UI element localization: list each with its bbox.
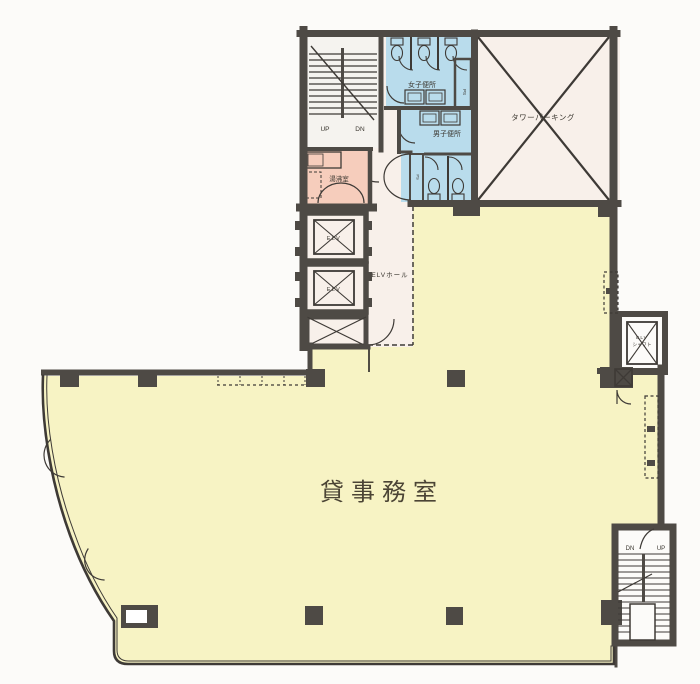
elevator-jamb: [366, 247, 372, 256]
column-with-shaft: [121, 605, 158, 628]
elevator-jamb: [366, 272, 372, 281]
stair-se-up-label: UP: [657, 546, 665, 552]
column: [305, 606, 323, 625]
column: [446, 607, 463, 625]
floor-plan-page: タワーパーキング UP DN 女子便所: [0, 0, 700, 684]
elevator-shaft-east: ELV シャフト: [619, 314, 665, 372]
tower-parking: タワーパーキング: [478, 37, 610, 201]
column: [60, 373, 79, 387]
stair-se-break-line: [618, 574, 652, 592]
elevator-2-label: ELV: [327, 287, 342, 293]
office-label: 貸事務室: [320, 479, 444, 506]
womens-toilet-label: 女子便所: [408, 80, 436, 89]
kitchenette: 湯沸室: [302, 148, 372, 207]
womens-toilet: 女子便所: [386, 33, 472, 108]
stair-nw-dn-label: DN: [355, 126, 365, 133]
mens-toilet-label: 男子便所: [433, 129, 461, 138]
stairwell-southeast: DN UP: [615, 527, 673, 643]
stair-nw-up-label: UP: [320, 126, 329, 133]
mens-toilet: 男子便所 PS: [399, 108, 471, 202]
column: [306, 369, 325, 387]
stair-se-door-arc: [640, 529, 654, 549]
elevator-jamb: [366, 221, 372, 230]
elevator-1-label: ELV: [327, 236, 342, 242]
column: [138, 373, 157, 387]
floor-plan-drawing: タワーパーキング UP DN 女子便所: [0, 0, 700, 684]
stair-se-side-treads: [618, 608, 670, 632]
pipe-shaft-mens-label: PS: [416, 174, 421, 180]
column: [598, 204, 616, 217]
pipe-shaft-top-label: PS: [462, 89, 467, 95]
stair-se-landing: [630, 604, 655, 640]
elevator-shaft-label-1: ELV: [636, 335, 648, 341]
elevator-jamb: [366, 298, 372, 307]
column: [453, 204, 480, 216]
kitchenette-label: 湯沸室: [329, 174, 349, 183]
elevator-shaft-label-2: シャフト: [632, 342, 651, 348]
stair-se-dn-label: DN: [626, 546, 635, 552]
column: [447, 370, 465, 387]
tower-parking-label: タワーパーキング: [511, 112, 575, 122]
elevator-hall-label: ELVホール: [371, 271, 408, 279]
